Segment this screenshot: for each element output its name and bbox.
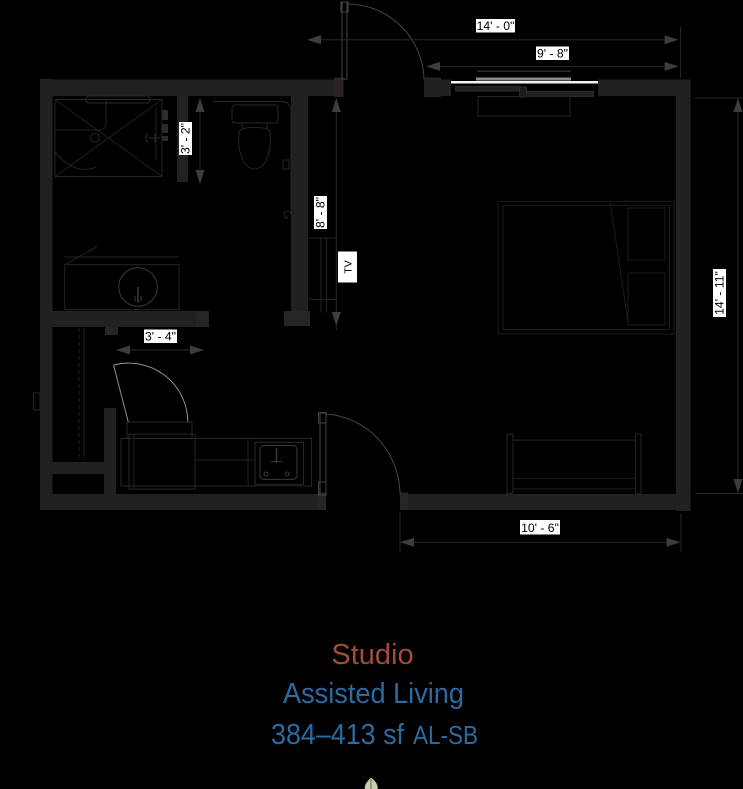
svg-text:TV: TV	[343, 260, 355, 273]
svg-text:3' - 4": 3' - 4"	[145, 330, 176, 344]
svg-text:384–413 sf: 384–413 sf	[271, 719, 405, 751]
svg-text:3' - 2": 3' - 2"	[179, 123, 193, 154]
svg-text:14' - 11": 14' - 11"	[713, 271, 727, 315]
svg-text:14' - 0": 14' - 0"	[477, 19, 515, 33]
svg-text:9' - 8": 9' - 8"	[537, 47, 568, 61]
svg-text:8' - 8": 8' - 8"	[314, 197, 328, 228]
svg-text:10' - 6": 10' - 6"	[521, 521, 559, 535]
svg-text:Assisted Living: Assisted Living	[283, 678, 464, 710]
svg-text:Studio: Studio	[331, 639, 413, 671]
svg-text:AL-SB: AL-SB	[413, 720, 478, 750]
